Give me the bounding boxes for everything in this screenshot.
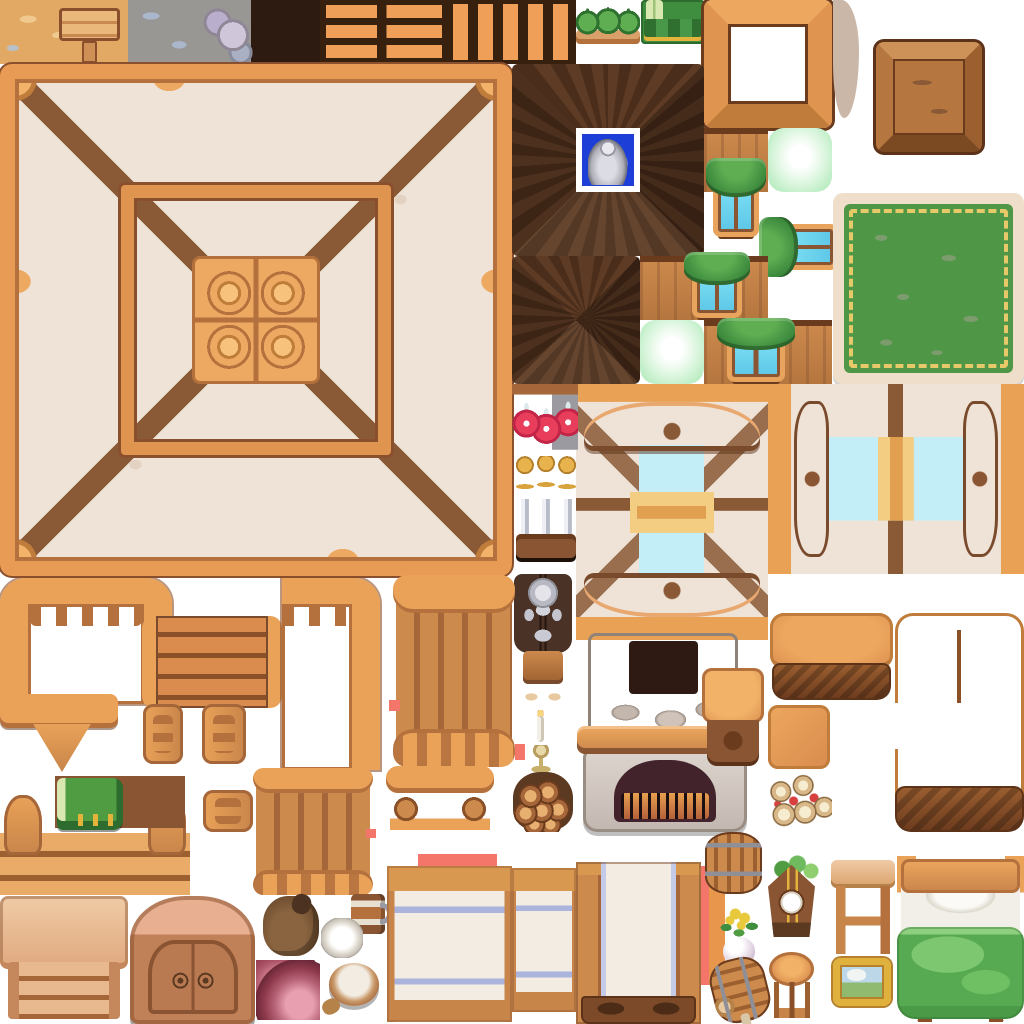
wall-shelf-horizontal-planks bbox=[320, 0, 448, 64]
candle-stand bbox=[527, 710, 555, 772]
silver-stein bbox=[588, 138, 628, 185]
railing-finial bbox=[32, 724, 92, 772]
railing-post-a bbox=[143, 704, 183, 764]
scroll-pile bbox=[768, 770, 832, 832]
barrel-upright bbox=[705, 832, 762, 894]
painting-gold-frame bbox=[833, 958, 891, 1006]
flower-vase bbox=[716, 905, 762, 965]
desk-side-view bbox=[831, 860, 895, 954]
table-cloth-long bbox=[387, 866, 512, 1022]
marker-strip-top bbox=[418, 854, 497, 866]
marker-dot-c bbox=[366, 829, 376, 838]
ground-stone bbox=[128, 0, 256, 64]
glow-tile-b bbox=[640, 320, 704, 384]
window-top-view bbox=[576, 384, 768, 640]
ceiling-room bbox=[0, 64, 512, 576]
potion-rack bbox=[512, 384, 578, 450]
railing-ledge bbox=[0, 694, 118, 728]
ham bbox=[256, 960, 320, 1020]
shelf-green-bundles bbox=[641, 0, 705, 44]
sack-brown bbox=[263, 896, 319, 956]
window-side-view bbox=[768, 384, 1024, 574]
table-cloth-front bbox=[576, 862, 701, 1024]
dark-square-tile bbox=[256, 0, 320, 64]
glow-tile-a bbox=[768, 128, 832, 192]
crate-top bbox=[876, 42, 982, 152]
shelf-green-sacks bbox=[576, 2, 640, 44]
railing-column-2 bbox=[256, 768, 370, 895]
ground-sand-sign bbox=[0, 0, 128, 64]
tilesheet bbox=[0, 0, 1024, 1024]
roof-peak-2 bbox=[512, 256, 640, 384]
couch-seat bbox=[770, 613, 893, 700]
side-table bbox=[702, 668, 764, 766]
knight-armor-statue bbox=[514, 574, 572, 702]
dormer-window-2 bbox=[759, 215, 841, 279]
railing-post-b bbox=[202, 704, 246, 764]
marker-dot-a bbox=[389, 700, 400, 711]
plate bbox=[321, 918, 363, 958]
bed-green bbox=[897, 856, 1024, 1022]
green-rug bbox=[833, 193, 1024, 384]
couch-cushion bbox=[768, 705, 830, 769]
firewood-pile bbox=[512, 770, 574, 832]
wall-shelf-vertical-planks bbox=[448, 0, 576, 64]
wardrobe-arched bbox=[130, 896, 255, 1024]
dormer-window-3 bbox=[682, 252, 752, 320]
stair-steps-top bbox=[142, 616, 282, 708]
marker-dot-b bbox=[515, 744, 525, 760]
plaster-scrap bbox=[833, 0, 859, 118]
desk-front bbox=[0, 896, 128, 1022]
railing-corner-right bbox=[282, 578, 380, 770]
dormer-window-4 bbox=[714, 318, 798, 384]
sword-rack bbox=[513, 456, 579, 558]
railing-column bbox=[396, 575, 512, 767]
table-cloth-edge bbox=[512, 868, 576, 1012]
cuckoo-clock bbox=[768, 855, 815, 937]
green-book bbox=[57, 778, 123, 830]
bench-small bbox=[386, 766, 494, 830]
wood-frame-open bbox=[704, 0, 832, 128]
flour-bowl bbox=[329, 960, 379, 1016]
stool-round bbox=[769, 952, 814, 1018]
counter-g-shape bbox=[895, 613, 1024, 832]
railing-knob bbox=[203, 790, 253, 832]
